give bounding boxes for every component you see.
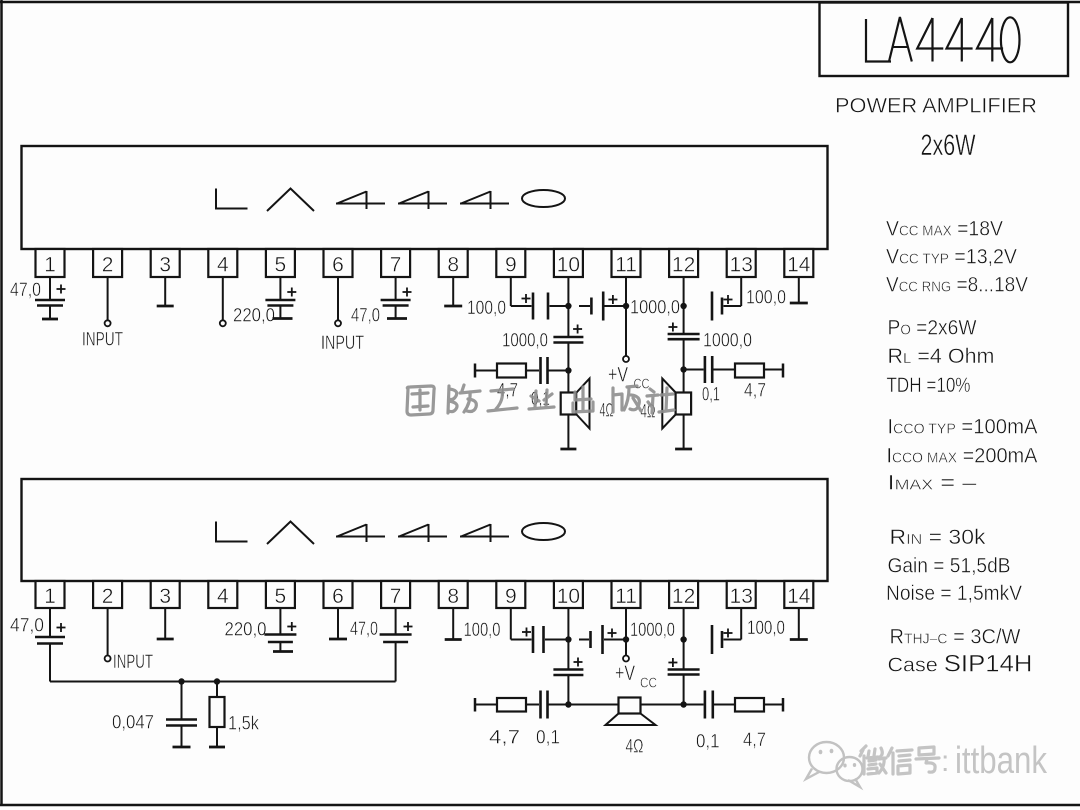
svg-text:3: 3 [159, 254, 171, 277]
svg-text:CC: CC [634, 376, 650, 393]
svg-text:4: 4 [217, 585, 229, 608]
svg-text:1: 1 [44, 254, 56, 277]
svg-text:7: 7 [390, 254, 402, 277]
svg-text:100,0: 100,0 [746, 288, 786, 309]
svg-text:2: 2 [102, 254, 114, 277]
svg-text:9: 9 [505, 585, 517, 608]
svg-text:1,5k: 1,5k [228, 714, 259, 735]
svg-text:0,1: 0,1 [536, 728, 560, 749]
svg-text:RIN = 30k: RIN = 30k [890, 525, 986, 549]
svg-text:ittbank: ittbank [955, 740, 1048, 782]
svg-text:100,0: 100,0 [747, 618, 785, 639]
svg-text:2x6W: 2x6W [921, 129, 976, 162]
svg-text:POWER AMPLIFIER: POWER AMPLIFIER [835, 94, 1037, 118]
svg-text:10: 10 [557, 585, 580, 608]
svg-text::: : [941, 745, 949, 778]
svg-text:Noise = 1,5mkV: Noise = 1,5mkV [886, 581, 1023, 605]
svg-text:14: 14 [787, 254, 811, 277]
svg-text:INPUT: INPUT [82, 330, 123, 351]
svg-text:47,0: 47,0 [350, 619, 378, 640]
svg-text:1000,0: 1000,0 [630, 620, 675, 641]
svg-text:5: 5 [275, 585, 287, 608]
svg-text:47,0: 47,0 [351, 306, 380, 327]
svg-text:Gain = 51,5dB: Gain = 51,5dB [888, 554, 1011, 578]
svg-text:100,0: 100,0 [464, 620, 501, 641]
svg-text:TDH =10%: TDH =10% [887, 373, 971, 397]
svg-text:100,0: 100,0 [467, 298, 506, 319]
svg-text:1000,0: 1000,0 [630, 298, 680, 319]
svg-text:0,047: 0,047 [112, 713, 154, 734]
svg-text:1000,0: 1000,0 [502, 331, 548, 352]
svg-text:Case SIP14H: Case SIP14H [888, 651, 1033, 678]
svg-text:8: 8 [447, 585, 459, 608]
svg-text:4,7: 4,7 [744, 381, 766, 402]
svg-text:4,7: 4,7 [489, 728, 520, 749]
svg-text:13: 13 [730, 585, 753, 608]
svg-text:220,0: 220,0 [225, 620, 267, 641]
svg-text:3: 3 [159, 585, 171, 608]
svg-text:4Ω: 4Ω [626, 737, 644, 758]
svg-text:6: 6 [332, 585, 344, 608]
svg-text:5: 5 [275, 254, 287, 277]
svg-text:4: 4 [217, 254, 229, 277]
svg-text:11: 11 [615, 254, 637, 277]
svg-text:47,0: 47,0 [10, 280, 41, 301]
svg-text:1: 1 [44, 585, 56, 608]
svg-text:9: 9 [505, 254, 517, 277]
svg-text:12: 12 [672, 254, 695, 277]
svg-text:7: 7 [390, 585, 402, 608]
svg-text:+V: +V [615, 662, 635, 685]
svg-text:0,1: 0,1 [702, 385, 720, 406]
svg-text:INPUT: INPUT [321, 333, 364, 354]
svg-text:6: 6 [332, 254, 344, 277]
svg-text:+V: +V [608, 364, 628, 387]
svg-text:CC: CC [640, 675, 657, 692]
svg-text:47,0: 47,0 [10, 616, 44, 637]
svg-text:4,7: 4,7 [743, 730, 766, 751]
svg-text:8: 8 [447, 254, 459, 277]
svg-text:220,0: 220,0 [233, 306, 275, 327]
svg-text:10: 10 [557, 254, 580, 277]
svg-text:0,1: 0,1 [696, 732, 720, 753]
svg-text:13: 13 [730, 254, 753, 277]
svg-text:12: 12 [672, 585, 695, 608]
svg-text:11: 11 [615, 585, 637, 608]
svg-text:2: 2 [102, 585, 114, 608]
svg-text:1000,0: 1000,0 [703, 331, 752, 352]
svg-text:INPUT: INPUT [113, 652, 153, 673]
svg-text:14: 14 [787, 585, 811, 608]
